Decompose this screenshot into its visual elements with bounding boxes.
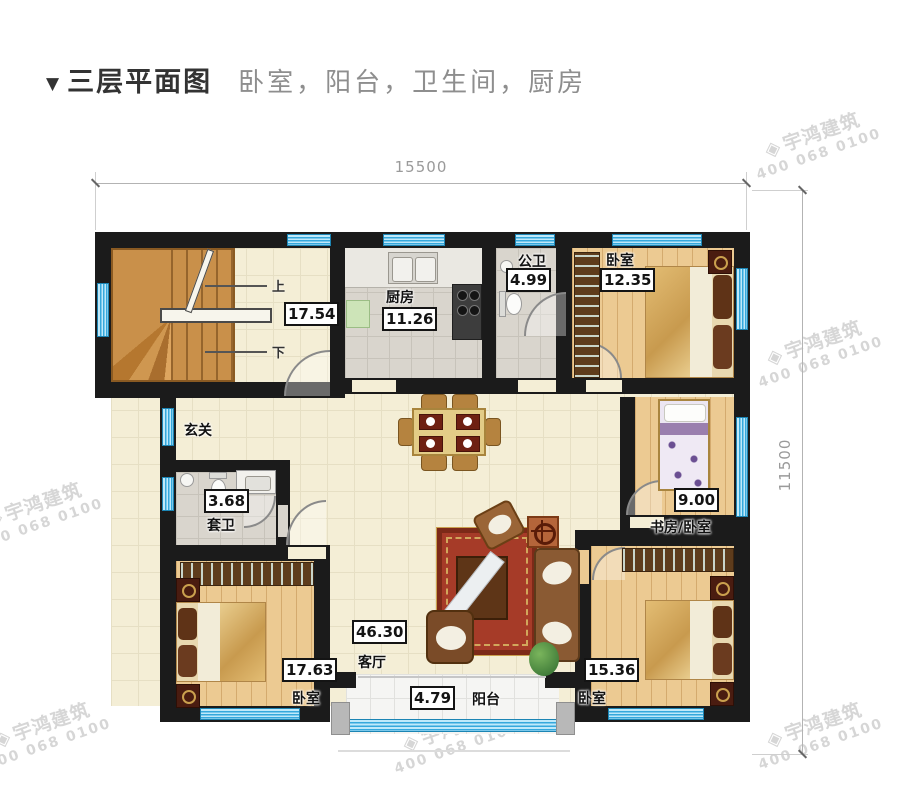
side-table (527, 516, 559, 548)
watermark: ◈宇鸿建筑 400 068 0100 (737, 99, 892, 187)
room-name-bedroom-se: 卧室 (578, 688, 606, 708)
door-opening (288, 547, 326, 559)
pillow (713, 325, 732, 369)
door-opening (586, 380, 622, 392)
room-name-bedroom-ne: 卧室 (606, 250, 634, 270)
area-label-living: 46.30 (352, 620, 407, 644)
window (162, 477, 174, 511)
armchair (426, 610, 474, 664)
watermark: ◈宇鸿建筑 400 068 0100 (739, 307, 894, 395)
pillow (178, 608, 197, 640)
chair (485, 418, 501, 446)
pillow (713, 643, 732, 675)
stair-up-label: 上 (272, 276, 285, 295)
floral-duvet (660, 435, 708, 489)
area-label-public-bath: 4.99 (506, 268, 551, 292)
balcony-threshold (358, 676, 546, 678)
plant-icon (529, 642, 559, 676)
dimension-line (95, 183, 747, 184)
stove-icon (452, 284, 482, 340)
pillow (713, 275, 732, 319)
window (612, 234, 702, 246)
window (97, 283, 109, 337)
window (287, 234, 331, 246)
bed (176, 602, 266, 682)
page-title: 三层平面图 (67, 60, 212, 99)
toilet-icon (506, 293, 522, 315)
dimension-width: 15500 (95, 158, 747, 176)
area-label-bedroom-ne: 12.35 (600, 268, 655, 292)
room-name-study: 书房/卧室 (650, 517, 711, 537)
window (200, 708, 300, 720)
pillow (664, 404, 706, 422)
watermark: ◈宇鸿建筑 400 068 0100 (739, 689, 894, 777)
room-name-balcony: 阳台 (472, 689, 500, 709)
dining-table (412, 408, 486, 456)
extension-line (752, 754, 808, 755)
room-name-kitchen: 厨房 (386, 287, 414, 307)
window (736, 268, 748, 330)
balcony-railing-window (346, 719, 559, 732)
balcony-pillar (331, 702, 350, 735)
window (383, 234, 445, 246)
nightstand (710, 682, 734, 706)
door-opening (518, 380, 556, 392)
pillow (713, 606, 732, 638)
area-label-kitchen: 11.26 (382, 307, 437, 331)
dimension-height: 11500 (776, 415, 794, 515)
balcony-pillar (556, 702, 575, 735)
duvet (646, 601, 690, 679)
extension-line (752, 190, 808, 191)
watermark: ◈宇鸿建筑 400 068 0100 (0, 469, 115, 557)
watermark: ◈宇鸿建筑 400 068 0100 (0, 689, 123, 777)
area-label-bedroom-se: 15.36 (584, 658, 639, 682)
area-label-stairs: 17.54 (284, 302, 339, 326)
area-label-suite-bath: 3.68 (204, 489, 249, 513)
wall-segment (482, 248, 496, 384)
chair (421, 454, 447, 471)
toilet-tank-icon (499, 291, 506, 317)
pillow (178, 645, 197, 677)
page-header: ▼ 三层平面图 卧室，阳台，卫生间，厨房 (46, 60, 586, 99)
blanket-band (660, 423, 708, 435)
sheet (690, 601, 712, 679)
nightstand (176, 578, 200, 602)
page-subtitle: 卧室，阳台，卫生间，厨房 (238, 62, 586, 99)
wardrobe (574, 252, 600, 378)
window (162, 408, 174, 446)
wardrobe (622, 548, 734, 572)
window (736, 417, 748, 517)
stair-up-line (205, 285, 267, 287)
room-name-living: 客厅 (358, 652, 386, 672)
sheet (198, 603, 220, 681)
stair-down-line (205, 351, 267, 353)
sheet (690, 267, 712, 377)
cutting-board-icon (346, 300, 370, 328)
bed (645, 600, 734, 680)
nightstand (710, 576, 734, 600)
sofa-pillow (539, 558, 575, 589)
window (515, 234, 555, 246)
area-label-balcony: 4.79 (410, 686, 455, 710)
dimension-line (802, 190, 803, 755)
wardrobe (180, 562, 314, 586)
sink-icon (180, 473, 194, 487)
chair (452, 454, 478, 471)
area-label-bedroom-sw: 17.63 (282, 658, 337, 682)
room-name-suite-bath: 套卫 (207, 515, 235, 535)
duvet (220, 603, 265, 681)
area-label-study: 9.00 (674, 488, 719, 512)
kitchen-sink-icon (388, 252, 438, 284)
section-marker-icon: ▼ (46, 74, 59, 94)
stair-down-label: 下 (272, 342, 285, 361)
window (608, 708, 704, 720)
room-name-entry: 玄关 (184, 420, 212, 440)
stair-railing (160, 308, 272, 323)
room-name-bedroom-sw: 卧室 (292, 688, 320, 708)
nightstand (708, 250, 732, 274)
toilet-tank-icon (209, 472, 227, 479)
nightstand (176, 684, 200, 708)
bed (658, 399, 710, 491)
bed (645, 266, 734, 378)
door-opening (352, 380, 396, 392)
balcony-edge-line (338, 750, 570, 752)
